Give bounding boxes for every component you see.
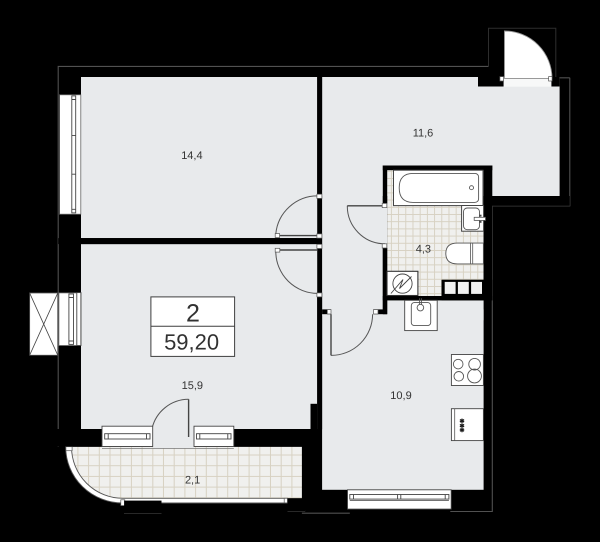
svg-text:10,9: 10,9 <box>390 390 411 402</box>
svg-text:2,1: 2,1 <box>185 474 200 486</box>
svg-text:59,20: 59,20 <box>164 330 219 355</box>
svg-text:14,4: 14,4 <box>181 150 202 162</box>
svg-text:4,3: 4,3 <box>416 244 431 256</box>
svg-text:2: 2 <box>186 300 200 328</box>
svg-text:15,9: 15,9 <box>182 380 203 392</box>
svg-text:11,6: 11,6 <box>413 127 434 139</box>
